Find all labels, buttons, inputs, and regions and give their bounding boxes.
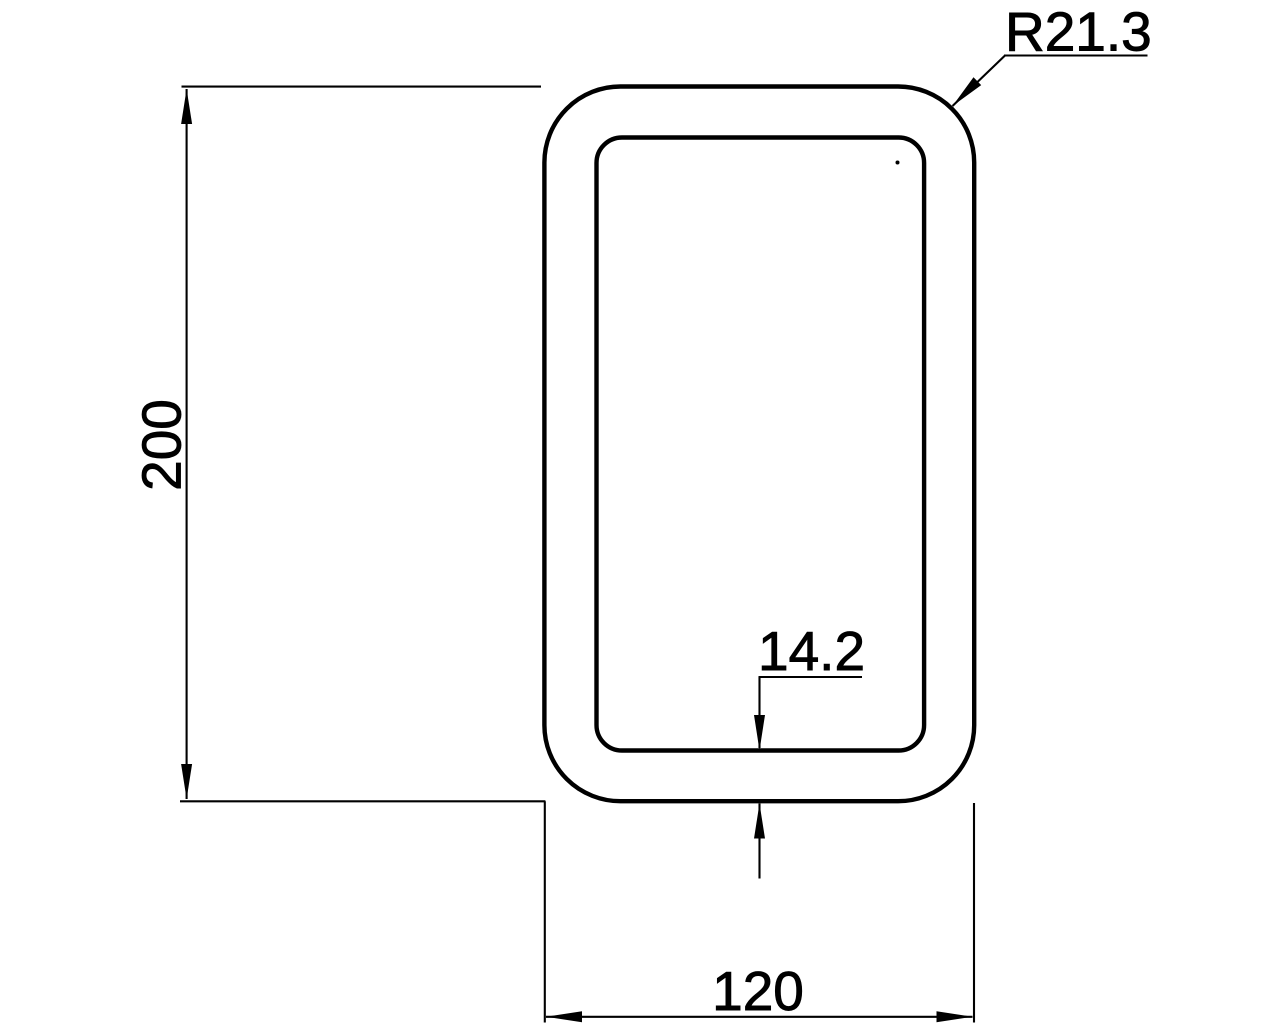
svg-text:200: 200 xyxy=(131,399,193,491)
svg-text:120: 120 xyxy=(712,960,804,1022)
svg-text:R21.3: R21.3 xyxy=(1005,1,1152,63)
svg-text:14.2: 14.2 xyxy=(758,620,865,682)
